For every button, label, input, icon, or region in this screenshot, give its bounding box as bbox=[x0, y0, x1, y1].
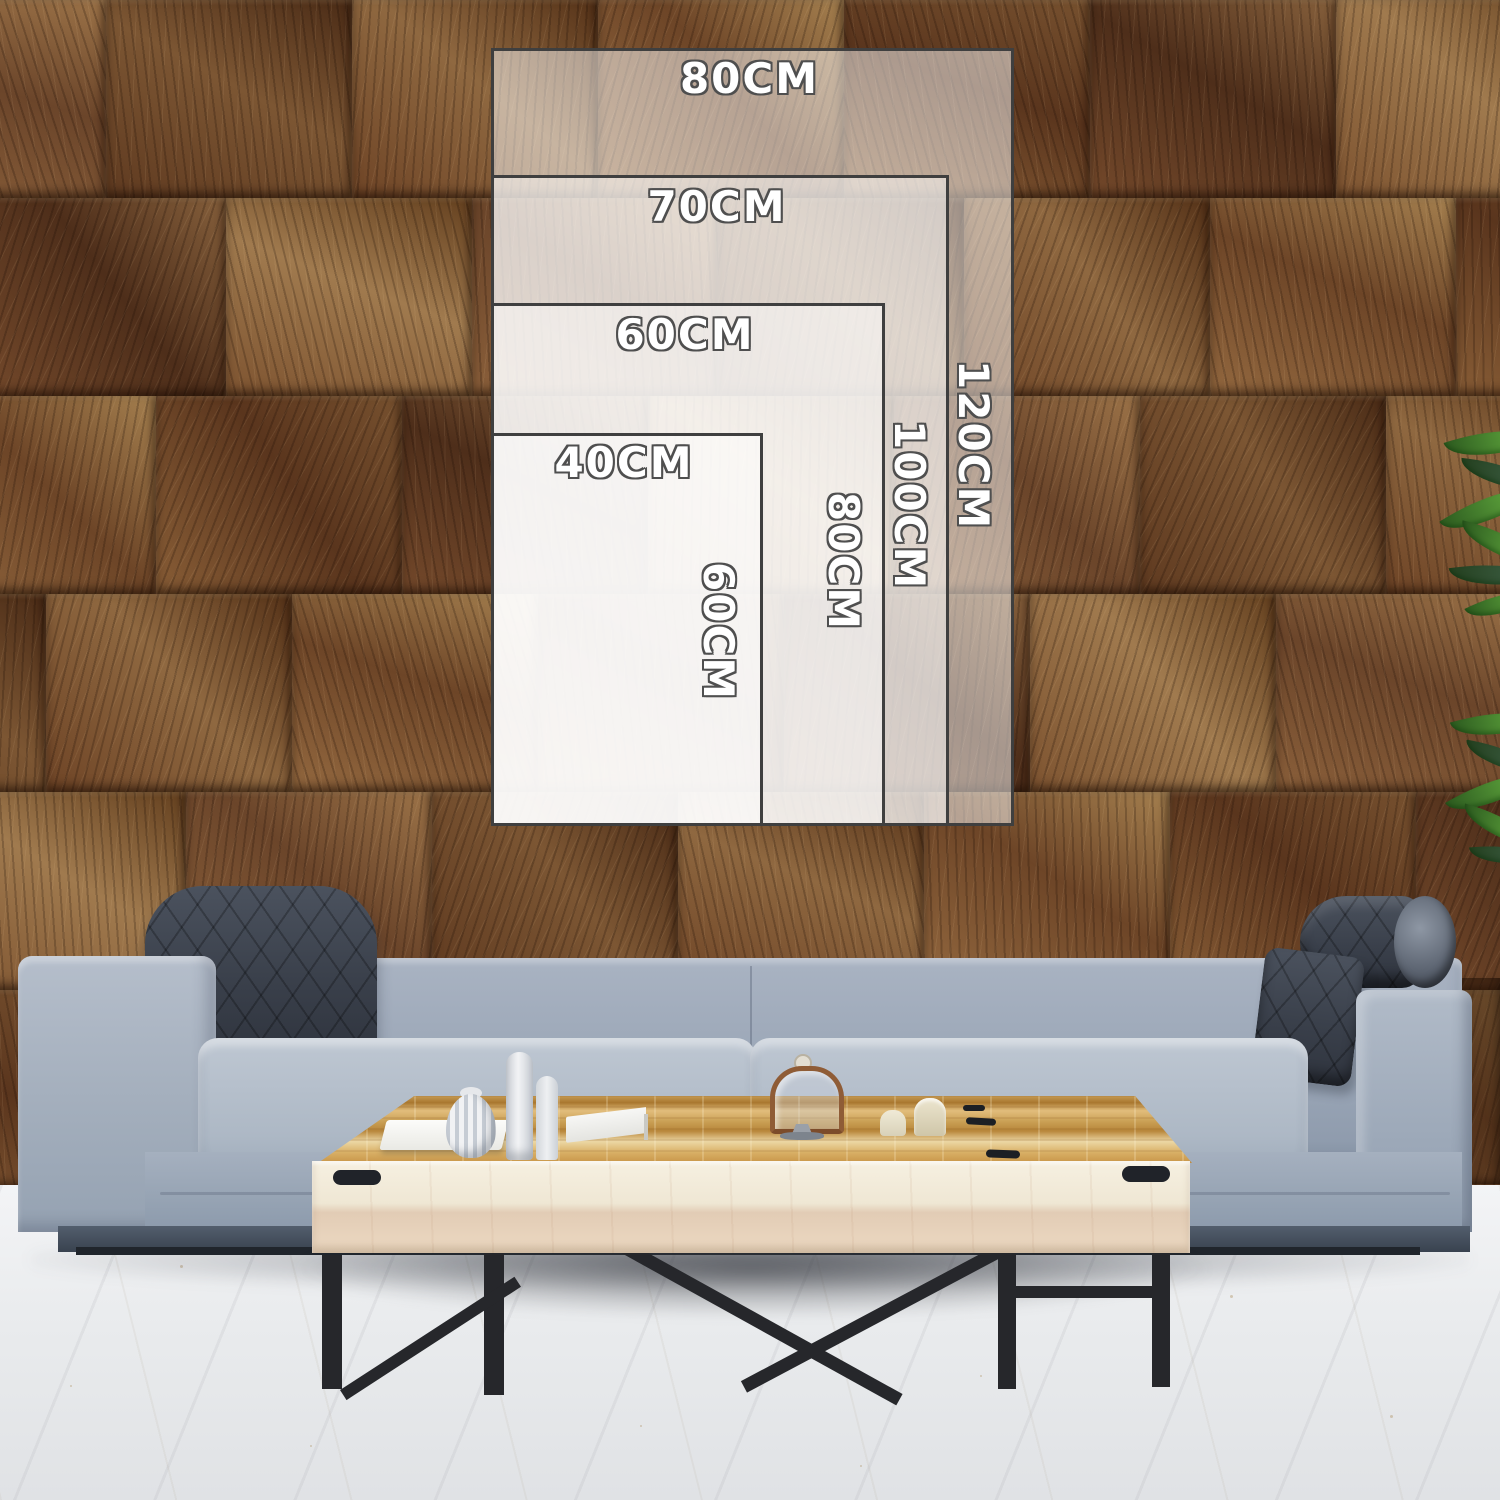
glass-cloche bbox=[770, 1066, 844, 1134]
potted-plant bbox=[1400, 410, 1500, 880]
plant-leaf bbox=[1459, 458, 1500, 492]
plant-leaf bbox=[1458, 803, 1500, 850]
floor-fleck bbox=[860, 1465, 862, 1467]
wall-block bbox=[0, 594, 48, 794]
wall-block bbox=[1456, 198, 1500, 398]
height-label-60cm: 60CM bbox=[697, 562, 739, 701]
plant-leaf bbox=[1462, 740, 1500, 777]
height-label-120cm: 120CM bbox=[952, 360, 994, 530]
living-room-scene: 80CM 70CM 60CM 40CM 120CM 100CM 80CM 60C… bbox=[0, 0, 1500, 1500]
floor-fleck bbox=[70, 1385, 72, 1387]
wall-block bbox=[106, 0, 354, 200]
floor-fleck bbox=[1390, 1415, 1393, 1418]
cylinder-vase-short bbox=[536, 1076, 558, 1160]
width-label-70cm: 70CM bbox=[491, 186, 943, 228]
open-book bbox=[566, 1108, 726, 1142]
floor-fleck bbox=[1230, 1295, 1233, 1298]
table-handle-slot bbox=[1122, 1166, 1170, 1182]
cloche-base bbox=[780, 1132, 824, 1140]
width-label-40cm: 40CM bbox=[491, 442, 757, 484]
table-leg bbox=[322, 1255, 342, 1389]
plant-leaf bbox=[1469, 841, 1500, 870]
floor-fleck bbox=[310, 1445, 312, 1447]
candle-small bbox=[880, 1110, 906, 1136]
tabletop-slot bbox=[986, 1149, 1020, 1158]
bolster-end-cap bbox=[1394, 896, 1456, 988]
wall-block bbox=[1336, 0, 1500, 200]
candle-large bbox=[914, 1098, 946, 1136]
floor-fleck bbox=[980, 1375, 982, 1377]
width-label-80cm: 80CM bbox=[491, 58, 1008, 100]
wall-block bbox=[1140, 396, 1388, 596]
wall-block bbox=[0, 198, 228, 398]
height-label-100cm: 100CM bbox=[888, 420, 930, 590]
book-page-left bbox=[566, 1107, 646, 1143]
plant-leaf bbox=[1464, 577, 1500, 630]
table-shadow bbox=[296, 1248, 1208, 1318]
width-label-60cm: 60CM bbox=[491, 314, 879, 356]
table-handle-slot bbox=[333, 1170, 381, 1185]
wall-block bbox=[0, 396, 158, 596]
book-spine bbox=[644, 1114, 648, 1140]
coffee-table-front bbox=[312, 1161, 1190, 1253]
plant-leaf bbox=[1456, 520, 1500, 567]
plant-leaf bbox=[1449, 556, 1500, 594]
cylinder-vase-tall bbox=[506, 1052, 533, 1160]
wall-block bbox=[156, 396, 404, 596]
tabletop-slot bbox=[966, 1117, 996, 1126]
wall-block bbox=[46, 594, 294, 794]
wall-block bbox=[1030, 594, 1278, 794]
table-leg-stretcher bbox=[998, 1286, 1170, 1298]
wall-block bbox=[0, 0, 108, 200]
tabletop-slot bbox=[963, 1105, 985, 1111]
book-page-right bbox=[646, 1107, 726, 1143]
floor-fleck bbox=[640, 1425, 642, 1427]
wall-block bbox=[1090, 0, 1338, 200]
wall-block bbox=[226, 198, 474, 398]
height-label-80cm: 80CM bbox=[822, 492, 864, 631]
wall-block bbox=[1210, 198, 1458, 398]
